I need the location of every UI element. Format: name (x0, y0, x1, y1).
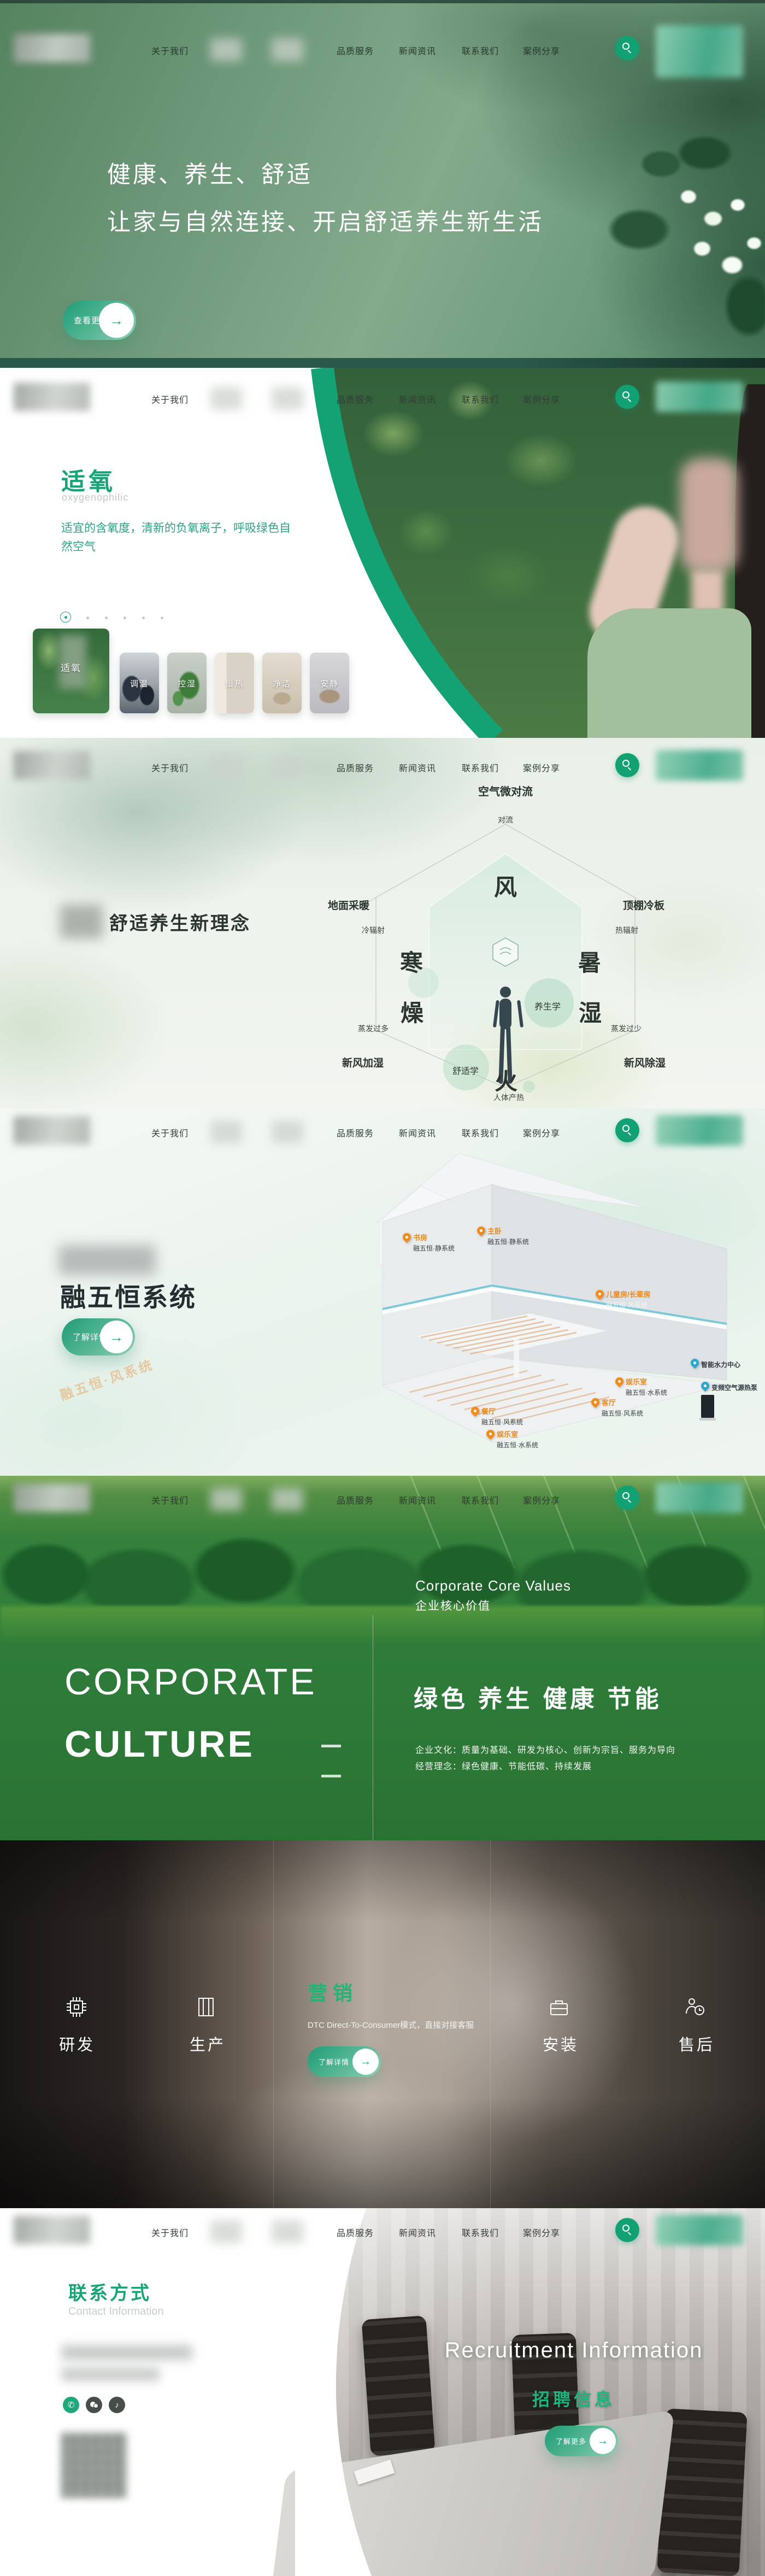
search-icon (622, 1492, 629, 1499)
nav-contact[interactable]: 联系我们 (462, 1126, 499, 1139)
service-production[interactable]: 生产 (190, 2032, 226, 2055)
diagram-left-title: 地面采暖 (328, 897, 369, 912)
nav-news[interactable]: 新闻资讯 (399, 2226, 436, 2239)
service-aftersales[interactable]: 售后 (679, 2032, 715, 2055)
hex-wet: 湿 (579, 995, 602, 1028)
card-label: 安静 (310, 678, 349, 689)
hex-cold: 寒 (400, 944, 423, 978)
system-title: 融五恒系统 (60, 1276, 197, 1314)
service-install[interactable]: 安装 (543, 2032, 579, 2055)
divider-vertical-line (373, 1615, 373, 1840)
search-button[interactable] (615, 385, 639, 409)
nav-contact[interactable]: 联系我们 (462, 392, 499, 406)
nav-quality[interactable]: 品质服务 (337, 2226, 374, 2239)
search-icon (622, 43, 629, 50)
woman-shirt (587, 608, 751, 738)
nav-cases[interactable]: 案例分享 (523, 2226, 560, 2239)
oxygen-section: 适氧 oxygenophilic 适宜的含氧度，清新的负氧离子，呼吸绿色自然空气… (0, 368, 765, 738)
oxygen-desc: 适宜的含氧度，清新的负氧离子，呼吸绿色自然空气 (61, 519, 302, 556)
pin-system: 融五恒·静系统 (487, 1237, 529, 1246)
card-clean[interactable]: 净洁 (262, 653, 302, 713)
bubble-comfort-label: 舒适学 (452, 1064, 479, 1077)
bubble-health-label: 养生学 (534, 999, 561, 1012)
nav-cta-blurred[interactable] (656, 1115, 743, 1146)
culture-corporate: CORPORATE (64, 1660, 317, 1703)
column-divider (273, 1840, 274, 2208)
nav-item-blurred[interactable] (210, 1488, 242, 1511)
pin-master: 主卧 融五恒·静系统 (487, 1225, 529, 1246)
hex-wind: 风 (489, 869, 522, 902)
floor-watermark: 融五恒·风系统 (57, 1354, 156, 1404)
marketing-desc: DTC Direct-To-Consumer模式，直接对接客服 (308, 2019, 474, 2031)
diagram-top-title: 空气微对流 (462, 783, 549, 799)
core-values-en: Corporate Core Values (415, 1577, 571, 1594)
marketing-detail-button[interactable]: 了解详情 → (308, 2046, 381, 2077)
production-icon (194, 1995, 218, 2019)
card-heat[interactable]: 恒热 (215, 653, 254, 713)
nav-about[interactable]: 关于我们 (151, 392, 189, 406)
culture-line2: 经营理念：绿色健康、节能低碳、持续发展 (415, 1759, 592, 1772)
nav-item-blurred[interactable] (272, 2220, 303, 2243)
search-icon (622, 391, 629, 398)
concept-heading: 舒适养生新理念 (109, 908, 251, 935)
nav-item-blurred[interactable] (210, 387, 242, 410)
divider-tick (321, 1745, 341, 1747)
diagram-left-sub: 冷辐射 (362, 925, 385, 936)
contact-info-blurred (61, 2368, 160, 2381)
search-icon (622, 1125, 629, 1132)
nav-contact[interactable]: 联系我们 (462, 1493, 499, 1506)
card-temperature[interactable]: 调温 (120, 653, 159, 713)
logo-blurred[interactable] (14, 34, 90, 62)
culture-line1: 企业文化：质量为基础、研发为核心、创新为宗旨、服务为导向 (415, 1742, 675, 1756)
arrow-right-icon: → (590, 2428, 616, 2454)
flower-branch-image (574, 131, 765, 350)
search-button[interactable] (615, 36, 639, 60)
nav-cases[interactable]: 案例分享 (523, 1493, 560, 1506)
nav-item-blurred[interactable] (272, 1488, 303, 1511)
diagram-bl-title: 新风加湿 (342, 1055, 384, 1070)
diagram-top-sub: 对流 (489, 814, 522, 825)
nav-about[interactable]: 关于我们 (151, 44, 189, 57)
wechat-icon[interactable] (86, 2397, 102, 2413)
card-label: 恒热 (215, 678, 254, 689)
diagram-bl-sub: 蒸发过多 (358, 1023, 389, 1034)
hex-fire: 火 (491, 1063, 521, 1096)
culture-slogan: 绿色 养生 健康 节能 (414, 1679, 662, 1714)
pin-system: 融五恒·水系统 (497, 1440, 538, 1450)
qr-code-blurred (61, 2432, 127, 2498)
nav-news[interactable]: 新闻资讯 (399, 1126, 436, 1139)
navbar-s2: 关于我们 品质服务 新闻资讯 联系我们 案例分享 (0, 382, 765, 416)
system-detail-button[interactable]: 了解详情 → (62, 1318, 135, 1356)
nav-about[interactable]: 关于我们 (151, 761, 189, 774)
phone-icon[interactable]: ✆ (63, 2397, 79, 2413)
diagram-br-sub: 蒸发过少 (611, 1023, 642, 1034)
logo-blurred[interactable] (14, 1483, 90, 1512)
nav-news[interactable]: 新闻资讯 (399, 761, 436, 774)
nav-about[interactable]: 关于我们 (151, 1493, 189, 1506)
core-values-cn: 企业核心价值 (415, 1597, 491, 1613)
carousel-dot[interactable] (142, 617, 145, 619)
heading-logo-blurred (58, 1245, 156, 1275)
hex-dry: 燥 (401, 995, 423, 1028)
nav-cases[interactable]: 案例分享 (523, 392, 560, 406)
cpu-icon (64, 1995, 89, 2019)
navbar-s4: 关于我们 品质服务 新闻资讯 联系我们 案例分享 (0, 1115, 765, 1150)
pin-playroom-left: 娱乐室 融五恒·水系统 (497, 1429, 538, 1450)
nav-contact[interactable]: 联系我们 (462, 761, 499, 774)
pin-room: 主卧 (487, 1225, 529, 1236)
nav-about[interactable]: 关于我们 (151, 2226, 189, 2239)
culture-culture: CULTURE (64, 1723, 255, 1765)
service-rd[interactable]: 研发 (59, 2032, 95, 2055)
card-label: 净洁 (262, 678, 302, 689)
search-icon (622, 2225, 629, 2232)
diagram-br-title: 新风除湿 (624, 1055, 666, 1070)
pin-room: 餐厅 (481, 1406, 523, 1416)
woman-neck (691, 570, 724, 614)
nav-item-blurred[interactable] (210, 1120, 242, 1143)
card-label: 适氧 (33, 660, 109, 674)
card-quiet[interactable]: 安静 (310, 653, 349, 713)
page: 健康、养生、舒适 让家与自然连接、开启舒适养生新生活 查看更多 → 滑动了解更多… (0, 0, 765, 2576)
oxygen-subtitle: oxygenophilic (62, 492, 128, 503)
woman-face-blurred (680, 458, 738, 573)
pin-dining: 餐厅 融五恒·风系统 (481, 1406, 523, 1427)
pin-room: 儿童房/长辈房 (606, 1289, 651, 1299)
carousel-dot[interactable] (105, 617, 108, 619)
diagram-right-title: 顶棚冷板 (623, 897, 664, 912)
pin-system: 融五恒·风系统 (481, 1417, 523, 1427)
card-humidity[interactable]: 控湿 (167, 653, 207, 713)
nav-item-blurred[interactable] (210, 755, 242, 778)
search-button[interactable] (615, 2218, 639, 2242)
arrow-right-icon: → (100, 1321, 133, 1353)
nav-quality[interactable]: 品质服务 (337, 44, 374, 57)
search-button[interactable] (615, 753, 639, 777)
nav-item-blurred[interactable] (272, 755, 303, 778)
nav-cta-blurred[interactable] (656, 750, 743, 781)
nav-quality[interactable]: 品质服务 (337, 392, 374, 406)
heading-logo-blurred (60, 905, 103, 938)
nav-item-blurred[interactable] (210, 38, 242, 61)
nav-item-blurred[interactable] (210, 2220, 242, 2243)
recruit-title-cn: 招聘信息 (382, 2386, 765, 2411)
card-label: 控湿 (167, 678, 207, 689)
contact-section: 联系方式 Contact Information ✆ ♪ Recruitment… (0, 2208, 765, 2576)
aftersales-icon (683, 1995, 707, 2019)
pin-system: 融五恒·风系统 (606, 1300, 651, 1310)
grass-highlight (0, 1606, 765, 1644)
nav-cases[interactable]: 案例分享 (523, 761, 560, 774)
nav-news[interactable]: 新闻资讯 (399, 44, 436, 57)
logo-blurred[interactable] (14, 383, 90, 411)
search-button[interactable] (615, 1486, 639, 1510)
toolbox-icon (547, 1995, 571, 2019)
carousel-dot[interactable] (161, 617, 163, 619)
arrow-right-icon: → (352, 2049, 379, 2075)
hero-title-line2: 让家与自然连接、开启舒适养生新生活 (107, 203, 544, 237)
marketing-detail-label: 了解详情 (319, 2057, 349, 2067)
nav-cases[interactable]: 案例分享 (523, 1126, 560, 1139)
pin-kids: 儿童房/长辈房 融五恒·风系统 (606, 1289, 651, 1310)
service-marketing-active[interactable]: 营销 (308, 1978, 358, 2006)
navbar-s7: 关于我们 品质服务 新闻资讯 联系我们 案例分享 (0, 2215, 765, 2250)
pin-system: 融五恒·水系统 (626, 1388, 667, 1397)
recruit-more-button[interactable]: 了解更多 → (545, 2426, 618, 2456)
carousel-dot[interactable] (86, 617, 89, 619)
carousel-dot-active[interactable] (60, 612, 71, 623)
card-oxygen[interactable]: 适氧 (33, 629, 109, 713)
pin-room: 书房 (413, 1232, 455, 1242)
contact-title: 联系方式 (68, 2278, 151, 2305)
pin-playroom-right: 娱乐室 融五恒·水系统 (626, 1376, 667, 1397)
culture-section: Corporate Core Values 企业核心价值 CORPORATE C… (0, 1476, 765, 1840)
recruit-more-label: 了解更多 (556, 2436, 586, 2446)
contact-subtitle: Contact Information (68, 2305, 164, 2318)
recruit-title-en: Recruitment Information (382, 2338, 765, 2363)
nav-quality[interactable]: 品质服务 (337, 1493, 374, 1506)
nav-quality[interactable]: 品质服务 (337, 761, 374, 774)
navbar-s3: 关于我们 品质服务 新闻资讯 联系我们 案例分享 (0, 750, 765, 785)
logo-blurred[interactable] (14, 1116, 90, 1145)
nav-news[interactable]: 新闻资讯 (399, 392, 436, 406)
hex-heat: 暑 (578, 944, 601, 978)
pin-heat-pump: 变频空气源热泵 (711, 1383, 757, 1392)
logo-blurred[interactable] (14, 2216, 90, 2244)
search-icon (622, 760, 629, 767)
search-button[interactable] (615, 1118, 639, 1142)
nav-item-blurred[interactable] (272, 38, 303, 61)
diagram-bottom-sub: 人体产热 (490, 1092, 528, 1103)
nav-quality[interactable]: 品质服务 (337, 1126, 374, 1139)
nav-cta-blurred[interactable] (656, 2215, 743, 2245)
nav-contact[interactable]: 联系我们 (462, 44, 499, 57)
pin-device: 变频空气源热泵 (711, 1383, 757, 1392)
tree-line (0, 1502, 765, 1606)
pin-system: 融五恒·风系统 (602, 1409, 643, 1418)
navbar-hero: 关于我们 品质服务 新闻资讯 联系我们 案例分享 (0, 33, 765, 68)
carousel-dot[interactable] (123, 617, 126, 619)
pin-study: 书房 融五恒·静系统 (413, 1232, 455, 1253)
diagram-right-sub: 热辐射 (615, 925, 638, 936)
divider-tick (321, 1775, 341, 1777)
hero-title-line1: 健康、养生、舒适 (107, 156, 313, 190)
pin-hydraulic-center: 智能水力中心 (701, 1360, 740, 1369)
hero-bottom-strip (0, 358, 765, 368)
douyin-icon[interactable]: ♪ (109, 2397, 125, 2413)
arrow-right-icon: → (99, 303, 134, 338)
nav-item-blurred[interactable] (272, 387, 303, 410)
house-cutaway-illustration (350, 1140, 743, 1443)
top-dark-strip (0, 0, 765, 3)
pin-room: 娱乐室 (626, 1376, 667, 1387)
nav-contact[interactable]: 联系我们 (462, 2226, 499, 2239)
column-divider (490, 1840, 491, 2208)
nav-about[interactable]: 关于我们 (151, 1126, 189, 1139)
nav-cta-blurred[interactable] (656, 25, 743, 78)
concept-section: 舒适养生新理念 (0, 738, 765, 1108)
view-more-button[interactable]: 查看更多 → (63, 301, 136, 340)
pin-system: 融五恒·静系统 (413, 1243, 455, 1253)
nav-cta-blurred[interactable] (656, 382, 743, 412)
nav-cases[interactable]: 案例分享 (523, 44, 560, 57)
card-label: 调温 (120, 678, 159, 689)
nav-news[interactable]: 新闻资讯 (399, 1493, 436, 1506)
pin-room: 客厅 (602, 1397, 643, 1407)
pin-room: 娱乐室 (497, 1429, 538, 1439)
pin-living: 客厅 融五恒·风系统 (602, 1397, 643, 1418)
logo-blurred[interactable] (14, 751, 90, 779)
nav-item-blurred[interactable] (272, 1120, 303, 1143)
navbar-s5: 关于我们 品质服务 新闻资讯 联系我们 案例分享 (0, 1482, 765, 1517)
pin-device: 智能水力中心 (701, 1360, 740, 1369)
nav-cta-blurred[interactable] (656, 1482, 743, 1513)
contact-info-blurred (61, 2345, 192, 2360)
